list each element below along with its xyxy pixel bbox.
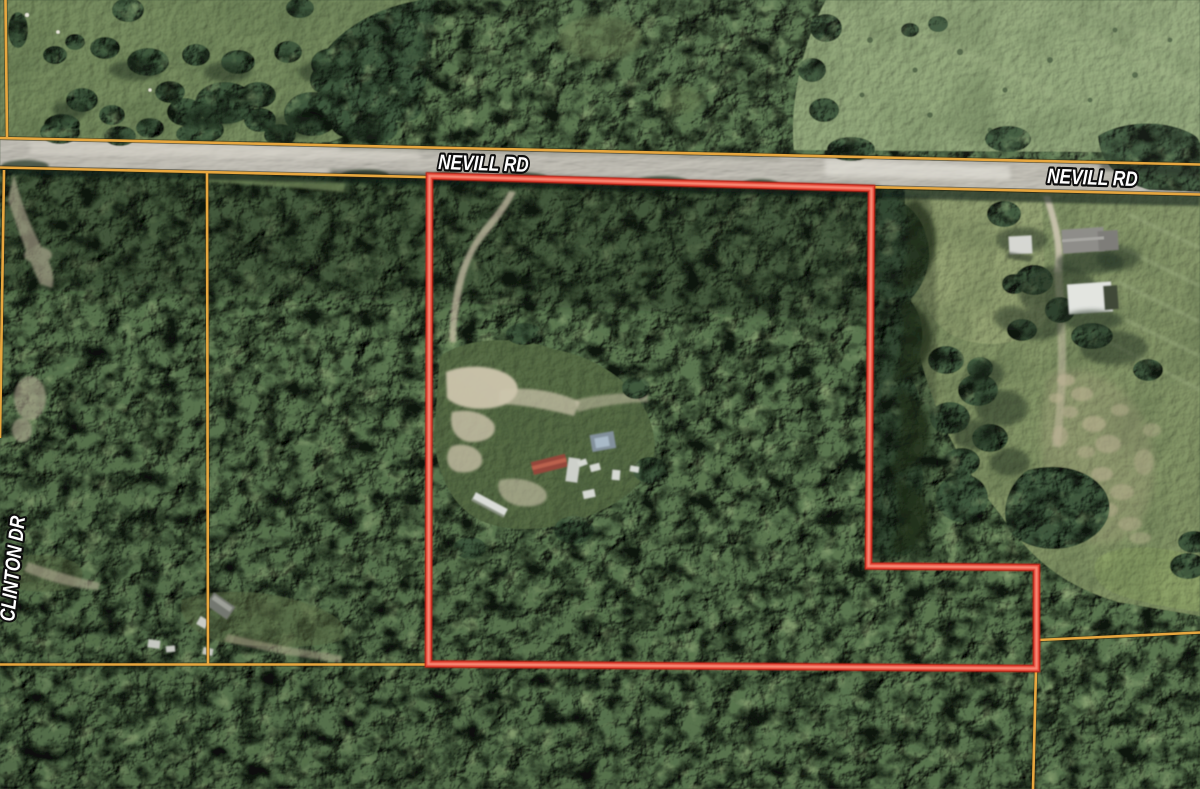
svg-text:NEVILL RD: NEVILL RD: [438, 152, 529, 178]
svg-text:NEVILL RD: NEVILL RD: [1047, 166, 1138, 192]
